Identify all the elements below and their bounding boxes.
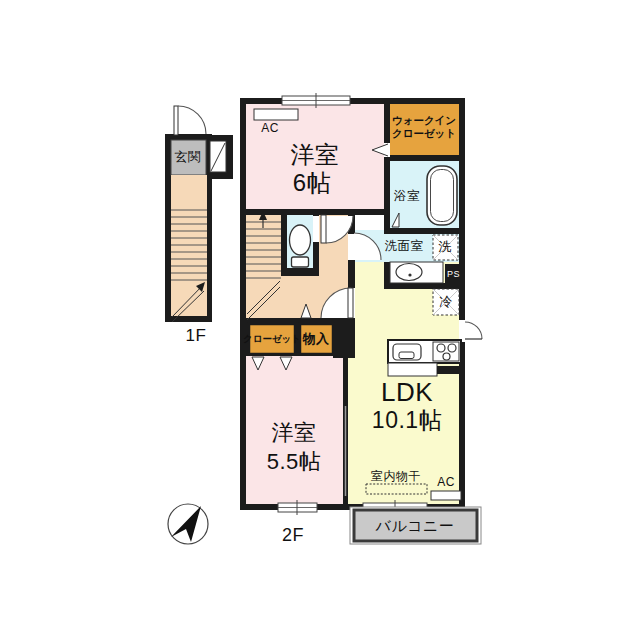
ps-label: PS: [447, 268, 460, 278]
genkan-label: 玄関: [175, 150, 202, 165]
bedroom6-name: 洋室: [291, 142, 340, 169]
bedroom6-size: 6帖: [293, 170, 331, 197]
wic-label-line2: クローゼット: [392, 128, 456, 140]
toilet-door-leaf: [321, 215, 326, 243]
floorplan-canvas: { "plan": { "floor1": { "label": "1F", "…: [0, 0, 640, 640]
ac-label-bedroom6: AC: [261, 122, 279, 135]
toilet-fixture: [290, 225, 311, 267]
washer-label: 洗: [438, 240, 452, 255]
wic-label-line1: ウォークイン: [392, 115, 456, 127]
washbasin: [390, 262, 443, 283]
balcony-label: バルコニー: [376, 518, 455, 535]
floorplan-drawing: [0, 0, 640, 640]
closet-label: クローゼット: [243, 334, 301, 345]
fridge-label: 冷: [439, 295, 453, 310]
kitchen-cabinet: [388, 363, 437, 376]
bedroom55-name: 洋室: [272, 421, 317, 446]
room-ldk-floor-strip: [348, 358, 355, 504]
ldk-size: 10.1帖: [372, 408, 442, 434]
kitchen-counter: [388, 340, 461, 376]
bath-label: 浴室: [394, 189, 420, 203]
hall-floor-lower: [281, 276, 319, 318]
ldk-hall-door-leaf: [348, 288, 353, 318]
ldk-exterior-door-arc: [465, 322, 482, 339]
bedroom55-size: 5.5帖: [267, 450, 322, 475]
floor1-block: [165, 106, 233, 322]
ldk-name: LDK: [381, 378, 433, 407]
compass-north-arrow: [168, 504, 208, 544]
entrance-door-arc: [178, 106, 206, 134]
ac-label-ldk: AC: [437, 476, 455, 489]
washroom-label: 洗面室: [385, 239, 424, 253]
ac-unit-ldk: [431, 491, 461, 500]
entrance-door-leaf: [174, 106, 178, 135]
2f-stairs-floor: [246, 215, 281, 318]
floor2-label: 2F: [282, 525, 304, 545]
ac-unit-bedroom6: [254, 109, 298, 120]
washroom-entry-floor: [355, 215, 384, 230]
storage-label: 物入: [303, 332, 330, 347]
floor1-label: 1F: [186, 326, 207, 345]
indoor-drying-label: 室内物干: [371, 470, 421, 483]
